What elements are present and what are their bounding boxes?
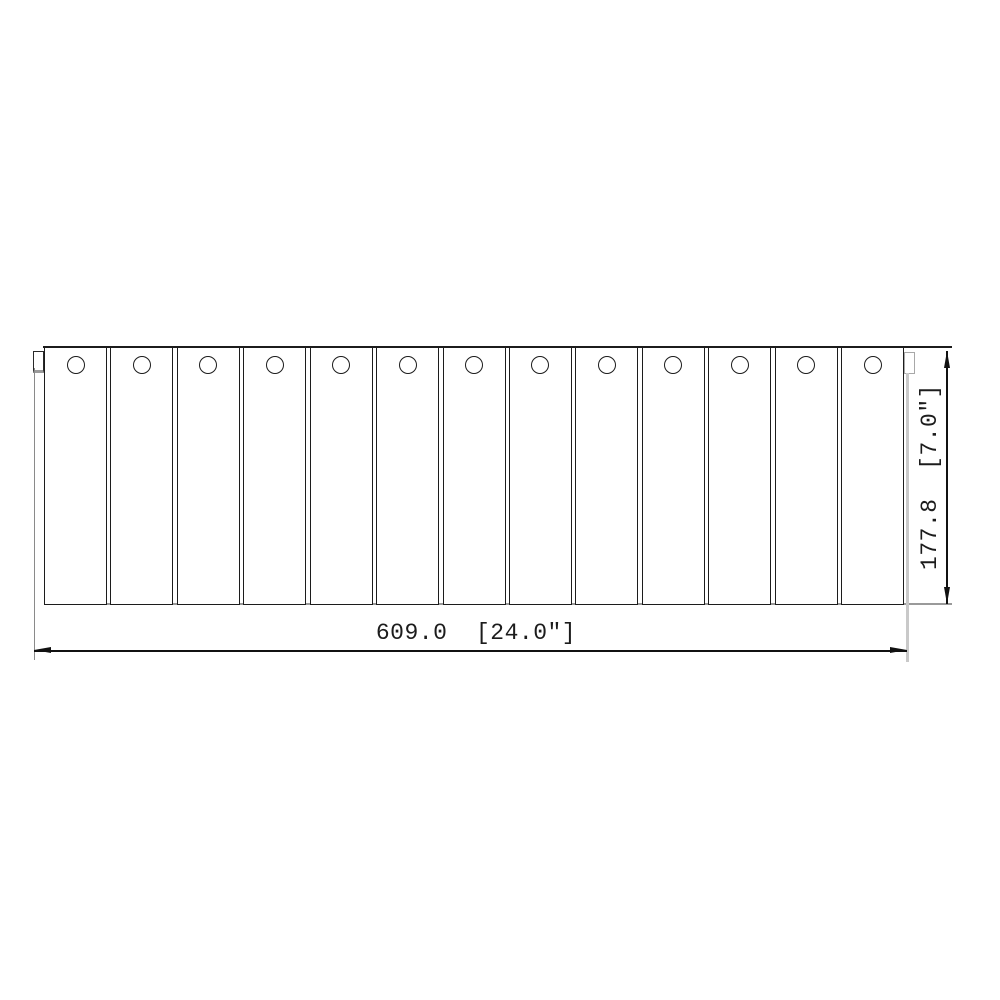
height-dimension-line	[946, 351, 948, 604]
extension-line-left	[34, 368, 35, 660]
slat-hole	[531, 356, 549, 374]
slat	[177, 347, 240, 605]
arrowhead-left-icon	[34, 647, 51, 653]
slat-hole	[664, 356, 682, 374]
width-dimension-label: 609.0 [24.0"]	[336, 620, 616, 646]
slat-hole	[731, 356, 749, 374]
width-dimension-line	[34, 650, 907, 652]
slat-hole	[332, 356, 350, 374]
slat	[376, 347, 439, 605]
slat	[642, 347, 705, 605]
slat	[775, 347, 838, 605]
slat-hole	[266, 356, 284, 374]
slat-hole	[797, 356, 815, 374]
slat-hole	[67, 356, 85, 374]
slat	[443, 347, 506, 605]
slat	[841, 347, 904, 605]
slat-hole	[598, 356, 616, 374]
slat-hole	[465, 356, 483, 374]
slat-hole	[133, 356, 151, 374]
right-end-bracket	[904, 352, 915, 374]
extension-line-right	[906, 373, 909, 662]
slat-hole	[399, 356, 417, 374]
slat	[243, 347, 306, 605]
arrowhead-right-icon	[890, 647, 907, 653]
slat	[575, 347, 638, 605]
slat	[708, 347, 771, 605]
arrowhead-down-icon	[944, 587, 950, 604]
slat-hole	[864, 356, 882, 374]
strip-curtain-drawing: 609.0 [24.0"] 177.8 [7.0"]	[0, 0, 1000, 1000]
slat	[310, 347, 373, 605]
slat-hole	[199, 356, 217, 374]
arrowhead-up-icon	[944, 351, 950, 368]
height-dimension-label: 177.8 [7.0"]	[917, 337, 943, 617]
slat	[44, 347, 107, 605]
slat	[509, 347, 572, 605]
slat	[110, 347, 173, 605]
